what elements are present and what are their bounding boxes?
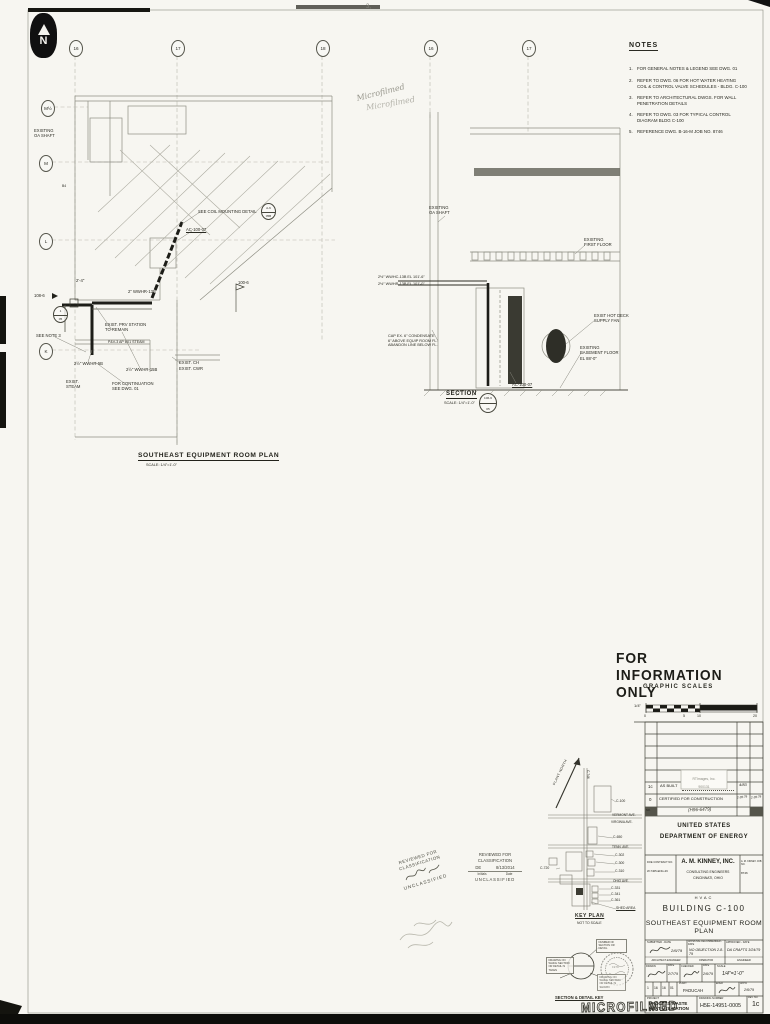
note-item: 2.REFER TO DWG. 06 FOR HOT WATER HEATING… bbox=[629, 78, 769, 89]
detailkey-right-label: DRAWING ON WHICH SECTION OR DETAIL IS SH… bbox=[597, 974, 626, 991]
stamp-initials: DE bbox=[475, 865, 481, 871]
rev-date-asbuilt: 4/83 bbox=[739, 783, 747, 788]
approval-foot: OPERATOR bbox=[687, 959, 725, 962]
scale-value: 1/4"=1'-0" bbox=[722, 971, 744, 977]
graphic-scale-bar bbox=[646, 703, 757, 713]
north-arrow: N bbox=[30, 13, 57, 58]
approved-value: DA CRAFTS 3/24/79 bbox=[727, 948, 762, 952]
firm-role: CONSULTING ENGINEERS bbox=[676, 870, 740, 874]
approved-label: APPROVED - DATE bbox=[726, 941, 749, 944]
north-arrow-icon bbox=[38, 24, 50, 35]
keyplan-bldg-c361: C-361 bbox=[611, 898, 620, 902]
checked-label: CHECKED bbox=[681, 965, 694, 968]
plan-label-wwhr-13b: 2" WWHR-13B bbox=[128, 289, 156, 294]
approval-label: APPROVAL RECOMMENDED - DATE bbox=[688, 941, 724, 947]
stamp-values: DE 8/13/2014 bbox=[468, 865, 522, 872]
note-number: 4. bbox=[629, 112, 637, 118]
note-number: 1. bbox=[629, 66, 637, 72]
number-value: H5E-14951-0005 bbox=[700, 1003, 741, 1009]
drawn-signature bbox=[647, 969, 666, 979]
drawing-sheet: N 3, 16 17 18 16 17 M½ M L K NOTES 1.FOR… bbox=[0, 0, 770, 1024]
section-label-cap-condensate: CAP EX. 6" CONDENSATE 6" ABOVE EQUIP ROO… bbox=[388, 334, 438, 348]
for-information-only-stamp: FOR INFORMATION ONLY bbox=[616, 650, 758, 701]
plan-detail-bubble-1: A-6 05B bbox=[261, 203, 276, 220]
job-label: A. M. KINNEY JOB NO. bbox=[741, 861, 762, 867]
grid-bubble-16-section: 16 bbox=[424, 40, 438, 57]
note-item: 3.REFER TO ARCHITECTURAL DWGS. FOR WALL … bbox=[629, 95, 769, 106]
keyplan-bldg-c746: C-746 bbox=[586, 770, 590, 779]
plan-label-b4: B4 bbox=[62, 184, 66, 188]
firm-city: CINCINNATI, OHIO bbox=[676, 876, 740, 880]
plan-detail-bubble-2: 1 05 bbox=[53, 306, 68, 323]
graphic-scales-title: GRAPHIC SCALES bbox=[643, 684, 713, 692]
note-text: REFER TO DWG. 03 FOR TYPICAL CONTROL DIA… bbox=[637, 112, 765, 123]
note-item: 1.FOR GENERAL NOTES & LEGEND SEE DWG. 01 bbox=[629, 66, 769, 72]
keyplan-street-virginia: VIRGINIA AVE. bbox=[611, 820, 633, 824]
detail-bubble-number: A-6 bbox=[262, 206, 275, 210]
scale-label: SCALE bbox=[717, 965, 726, 968]
section-label-wwhr-13b: 2½" WWHR-13B EL 101'-0" bbox=[378, 282, 425, 287]
project-value: PROCESS WASTE HEAT UTILIZATION bbox=[649, 1001, 689, 1012]
section-label-wwhc-13b: 2½" WWHC-13B EL 101'-6" bbox=[378, 275, 425, 280]
plan-title: SOUTHEAST EQUIPMENT ROOM PLAN bbox=[138, 452, 279, 461]
graphic-scale-unit: 1/4" bbox=[634, 703, 641, 708]
plant-value: PADUCAH bbox=[683, 988, 703, 993]
grid-bubble-m: M bbox=[39, 155, 53, 172]
keyplan-street-tenn: TENN. AVE. bbox=[612, 845, 629, 849]
scale-tick-0: 0 bbox=[644, 714, 646, 718]
stamp-result: UNCLASSIFIED bbox=[468, 877, 522, 883]
sheet-title: SOUTHEAST EQUIPMENT ROOM PLAN bbox=[645, 920, 763, 936]
detailkey-top-label: NUMBER OF SECTION OR DETAIL bbox=[596, 939, 627, 953]
discipline: HVAC bbox=[645, 896, 763, 901]
engr-signature bbox=[718, 985, 736, 995]
agency-line1: UNITED STATES bbox=[645, 823, 763, 830]
plan-scale: SCALE: 1/4"=1'-0" bbox=[146, 463, 177, 468]
keyplan-bldg-c331: C-331 bbox=[611, 886, 620, 890]
notes-title: NOTES bbox=[629, 42, 658, 51]
plan-label-wwhr-5b: 2½" WWHR-5B bbox=[74, 361, 103, 366]
classification-stamp-box: REVIEWED FOR CLASSIFICATION DE 8/13/2014… bbox=[468, 852, 522, 883]
keyplan-bldg-c302: C-302 bbox=[615, 853, 624, 857]
plan-label-exist-ch: EXIST. CH bbox=[179, 360, 199, 365]
plan-label-oa-shaft: EXISTING OA SHAFT bbox=[34, 128, 55, 139]
keyplan-bldg-c100: C-100 bbox=[616, 799, 625, 803]
plan-label-coil-detail: SEE COIL MOUNTING DETAIL bbox=[198, 209, 257, 214]
pencil-scribbles bbox=[400, 920, 452, 948]
detail-bubble-divider bbox=[54, 315, 67, 316]
photo-stamp-name: RTImages, Inc. bbox=[682, 777, 726, 781]
keyplan-bldg-c341: C-341 bbox=[611, 892, 620, 896]
note-item: 4.REFER TO DWG. 03 FOR TYPICAL CONTROL D… bbox=[629, 112, 769, 123]
cell-16b: 16 bbox=[662, 986, 666, 990]
rev-no-0: 0 bbox=[649, 797, 651, 802]
agency-line2: DEPARTMENT OF ENERGY bbox=[645, 834, 763, 841]
note-item: 5.REFERENCE DWG. B-16-M JOB NO. 8746 bbox=[629, 129, 769, 135]
plan-label-exist-cwr: EXIST. CWR bbox=[179, 366, 203, 371]
plan-dim-2-4: 2'-4" bbox=[76, 278, 84, 283]
job-number: 8746 bbox=[741, 872, 748, 876]
plan-label-see-note-3: SEE NOTE 3 bbox=[36, 333, 61, 338]
rev-no-1c: 1c bbox=[648, 784, 653, 789]
note-text: REFER TO ARCHITECTURAL DWGS. FOR WALL PE… bbox=[637, 95, 765, 106]
rev-desc-asbuilt: AS BUILT bbox=[660, 784, 678, 789]
grid-bubble-16: 16 bbox=[69, 40, 83, 57]
rev-desc-certified: CERTIFIED FOR CONSTRUCTION bbox=[659, 797, 723, 802]
scale-tick-10: 10 bbox=[697, 714, 701, 718]
plan-label-ac-100-07: AC-100-07 bbox=[186, 227, 206, 232]
plan-label-pv-steam: P&V-3 AP 6X1 STEAM bbox=[108, 340, 145, 344]
keyplan-bldg-c720: C-720 bbox=[540, 866, 549, 870]
submitted-signature bbox=[649, 945, 671, 955]
note-text: REFERENCE DWG. B-16-M JOB NO. 8746 bbox=[637, 129, 765, 135]
approval-value: NO OBJECTION 2-8-79 bbox=[689, 948, 724, 957]
contract-label: DOE CONTRACT NO. bbox=[647, 861, 675, 864]
section-title: SECTION bbox=[446, 391, 477, 399]
keyplan-subtitle: NOT TO SCALE bbox=[577, 921, 602, 925]
detailkey-left-label: DRAWING ON WHICH SECTION OR DETAIL IS TA… bbox=[546, 957, 574, 974]
section-label-oa-shaft: EXISTING OA SHAFT bbox=[429, 205, 450, 216]
plant-label: PLANT bbox=[679, 983, 687, 986]
number-label: DRAWING NUMBER bbox=[699, 997, 723, 1000]
submitted-foot: ARCHITECT-ENGINEER bbox=[645, 959, 687, 962]
plan-label-wwhr-15b: 2½" WWHR-15B bbox=[126, 367, 157, 372]
photo-stamp: RTImages, Inc. 900131 bbox=[682, 773, 726, 793]
photo-stamp-number: 900131 bbox=[682, 785, 726, 789]
submitted-label: SUBMITTED - DATE bbox=[647, 941, 671, 944]
keyplan-solids bbox=[576, 888, 583, 895]
note-number: 2. bbox=[629, 78, 637, 84]
project-label: PROJECT bbox=[647, 997, 659, 1000]
keyplan-bldg-c650: C-650 bbox=[613, 835, 622, 839]
contract-number: W-7405-ENG-26 bbox=[647, 870, 675, 873]
detail-bubble-number: 1 bbox=[54, 309, 67, 313]
grid-bubble-18: 18 bbox=[316, 40, 330, 57]
plan-label-100-6: 100-6 bbox=[238, 280, 249, 285]
appd-date: 2/6/79 bbox=[744, 988, 754, 992]
plan-label-108-6: 108-6 bbox=[34, 293, 45, 298]
drawn-date: 2/7/79 bbox=[668, 972, 678, 976]
section-bubble: 106-6 05 bbox=[479, 393, 497, 413]
section-bubble-sheet: 05 bbox=[480, 407, 496, 411]
plan-label-prv-station: EXIST. PRV STATION TO REMAIN bbox=[105, 322, 146, 333]
grid-bubble-l: L bbox=[39, 233, 53, 250]
section-bubble-number: 106-6 bbox=[480, 396, 496, 400]
plan-label-continuation: FOR CONTINUATION SEE DWG. 01 bbox=[112, 381, 154, 392]
detail-bubble-sheet: 05 bbox=[54, 317, 67, 321]
note-number: 5. bbox=[629, 129, 637, 135]
section-label-supply-fan: EXIST HOT DECK SUPPLY FAN bbox=[594, 313, 629, 324]
keyplan-shed-area: SHED AREA bbox=[616, 906, 635, 910]
keyplan-bldg-c300: C-300 bbox=[615, 861, 624, 865]
note-number: 3. bbox=[629, 95, 637, 101]
keyplan-bldg-c310: C-310 bbox=[615, 869, 624, 873]
plan-linework bbox=[75, 96, 332, 445]
keyplan-street-ohio: OHIO AVE. bbox=[613, 879, 629, 883]
north-letter: N bbox=[40, 36, 48, 47]
cell-16a: 16 bbox=[654, 986, 658, 990]
section-bubble-divider bbox=[480, 403, 496, 404]
stamp-initials-label: Initials bbox=[478, 872, 487, 877]
keyplan-linework bbox=[548, 768, 642, 910]
scale-tick-5: 5 bbox=[683, 714, 685, 718]
rev-no-label: NO. bbox=[646, 809, 651, 812]
approved-foot: ENGINEER bbox=[725, 959, 763, 962]
section-label-first-floor: EXISTING FIRST FLOOR bbox=[584, 237, 612, 248]
cell-1: 1 bbox=[647, 986, 649, 990]
page-corner-mark: 3, bbox=[366, 4, 371, 12]
appd-label: APP'D bbox=[740, 983, 747, 986]
grid-bubble-k: K bbox=[39, 343, 53, 360]
detail-bubble-divider bbox=[262, 212, 275, 213]
section-label-ac-100-07: AC-100-07 bbox=[512, 382, 532, 387]
detail-bubble-sheet: 05B bbox=[262, 214, 275, 218]
checked-signature bbox=[683, 969, 700, 979]
section-label-basement-floor: EXISTING BASEMENT FLOOR EL 88'-0" bbox=[580, 345, 619, 361]
grid-bubble-17: 17 bbox=[171, 40, 185, 57]
checked-date-label: DATE bbox=[703, 965, 709, 968]
drawn-date-label: DATE bbox=[668, 965, 674, 968]
firm-name: A. M. KINNEY, INC. bbox=[676, 859, 740, 866]
grid-bubble-17-section: 17 bbox=[522, 40, 536, 57]
building-title: BUILDING C-100 bbox=[645, 904, 763, 914]
rev-label: REV. NO. bbox=[748, 997, 758, 1000]
keyplan-street-vermont: VERMONT AVE. bbox=[612, 813, 636, 817]
plan-hatch bbox=[95, 145, 330, 284]
rev-value: 1c bbox=[752, 1001, 759, 1009]
note-text: REFER TO DWG. 06 FOR HOT WATER HEATING C… bbox=[637, 78, 765, 89]
section-scale: SCALE: 1/4"=1'-0" bbox=[444, 401, 475, 406]
cell-01: 01 bbox=[670, 986, 674, 990]
checked-date: 2/6/79 bbox=[703, 972, 713, 976]
scale-tick-20: 20 bbox=[753, 714, 757, 718]
stamp-date: 8/13/2014 bbox=[496, 865, 515, 871]
note-text: FOR GENERAL NOTES & LEGEND SEE DWG. 01 bbox=[637, 66, 765, 72]
grid-bubble-m2: M½ bbox=[41, 100, 55, 117]
submitted-date: 2/6/79 bbox=[671, 949, 682, 954]
hand-note: (H96-6479) bbox=[688, 807, 711, 813]
seal-year: 1979 bbox=[612, 966, 619, 970]
stamp-date-label: Date bbox=[506, 872, 513, 877]
plan-label-exist-steam: EXIST. STEAM bbox=[66, 379, 80, 390]
drawn-label: DRAWN bbox=[646, 965, 656, 968]
keyplan-title: KEY PLAN bbox=[575, 913, 604, 919]
